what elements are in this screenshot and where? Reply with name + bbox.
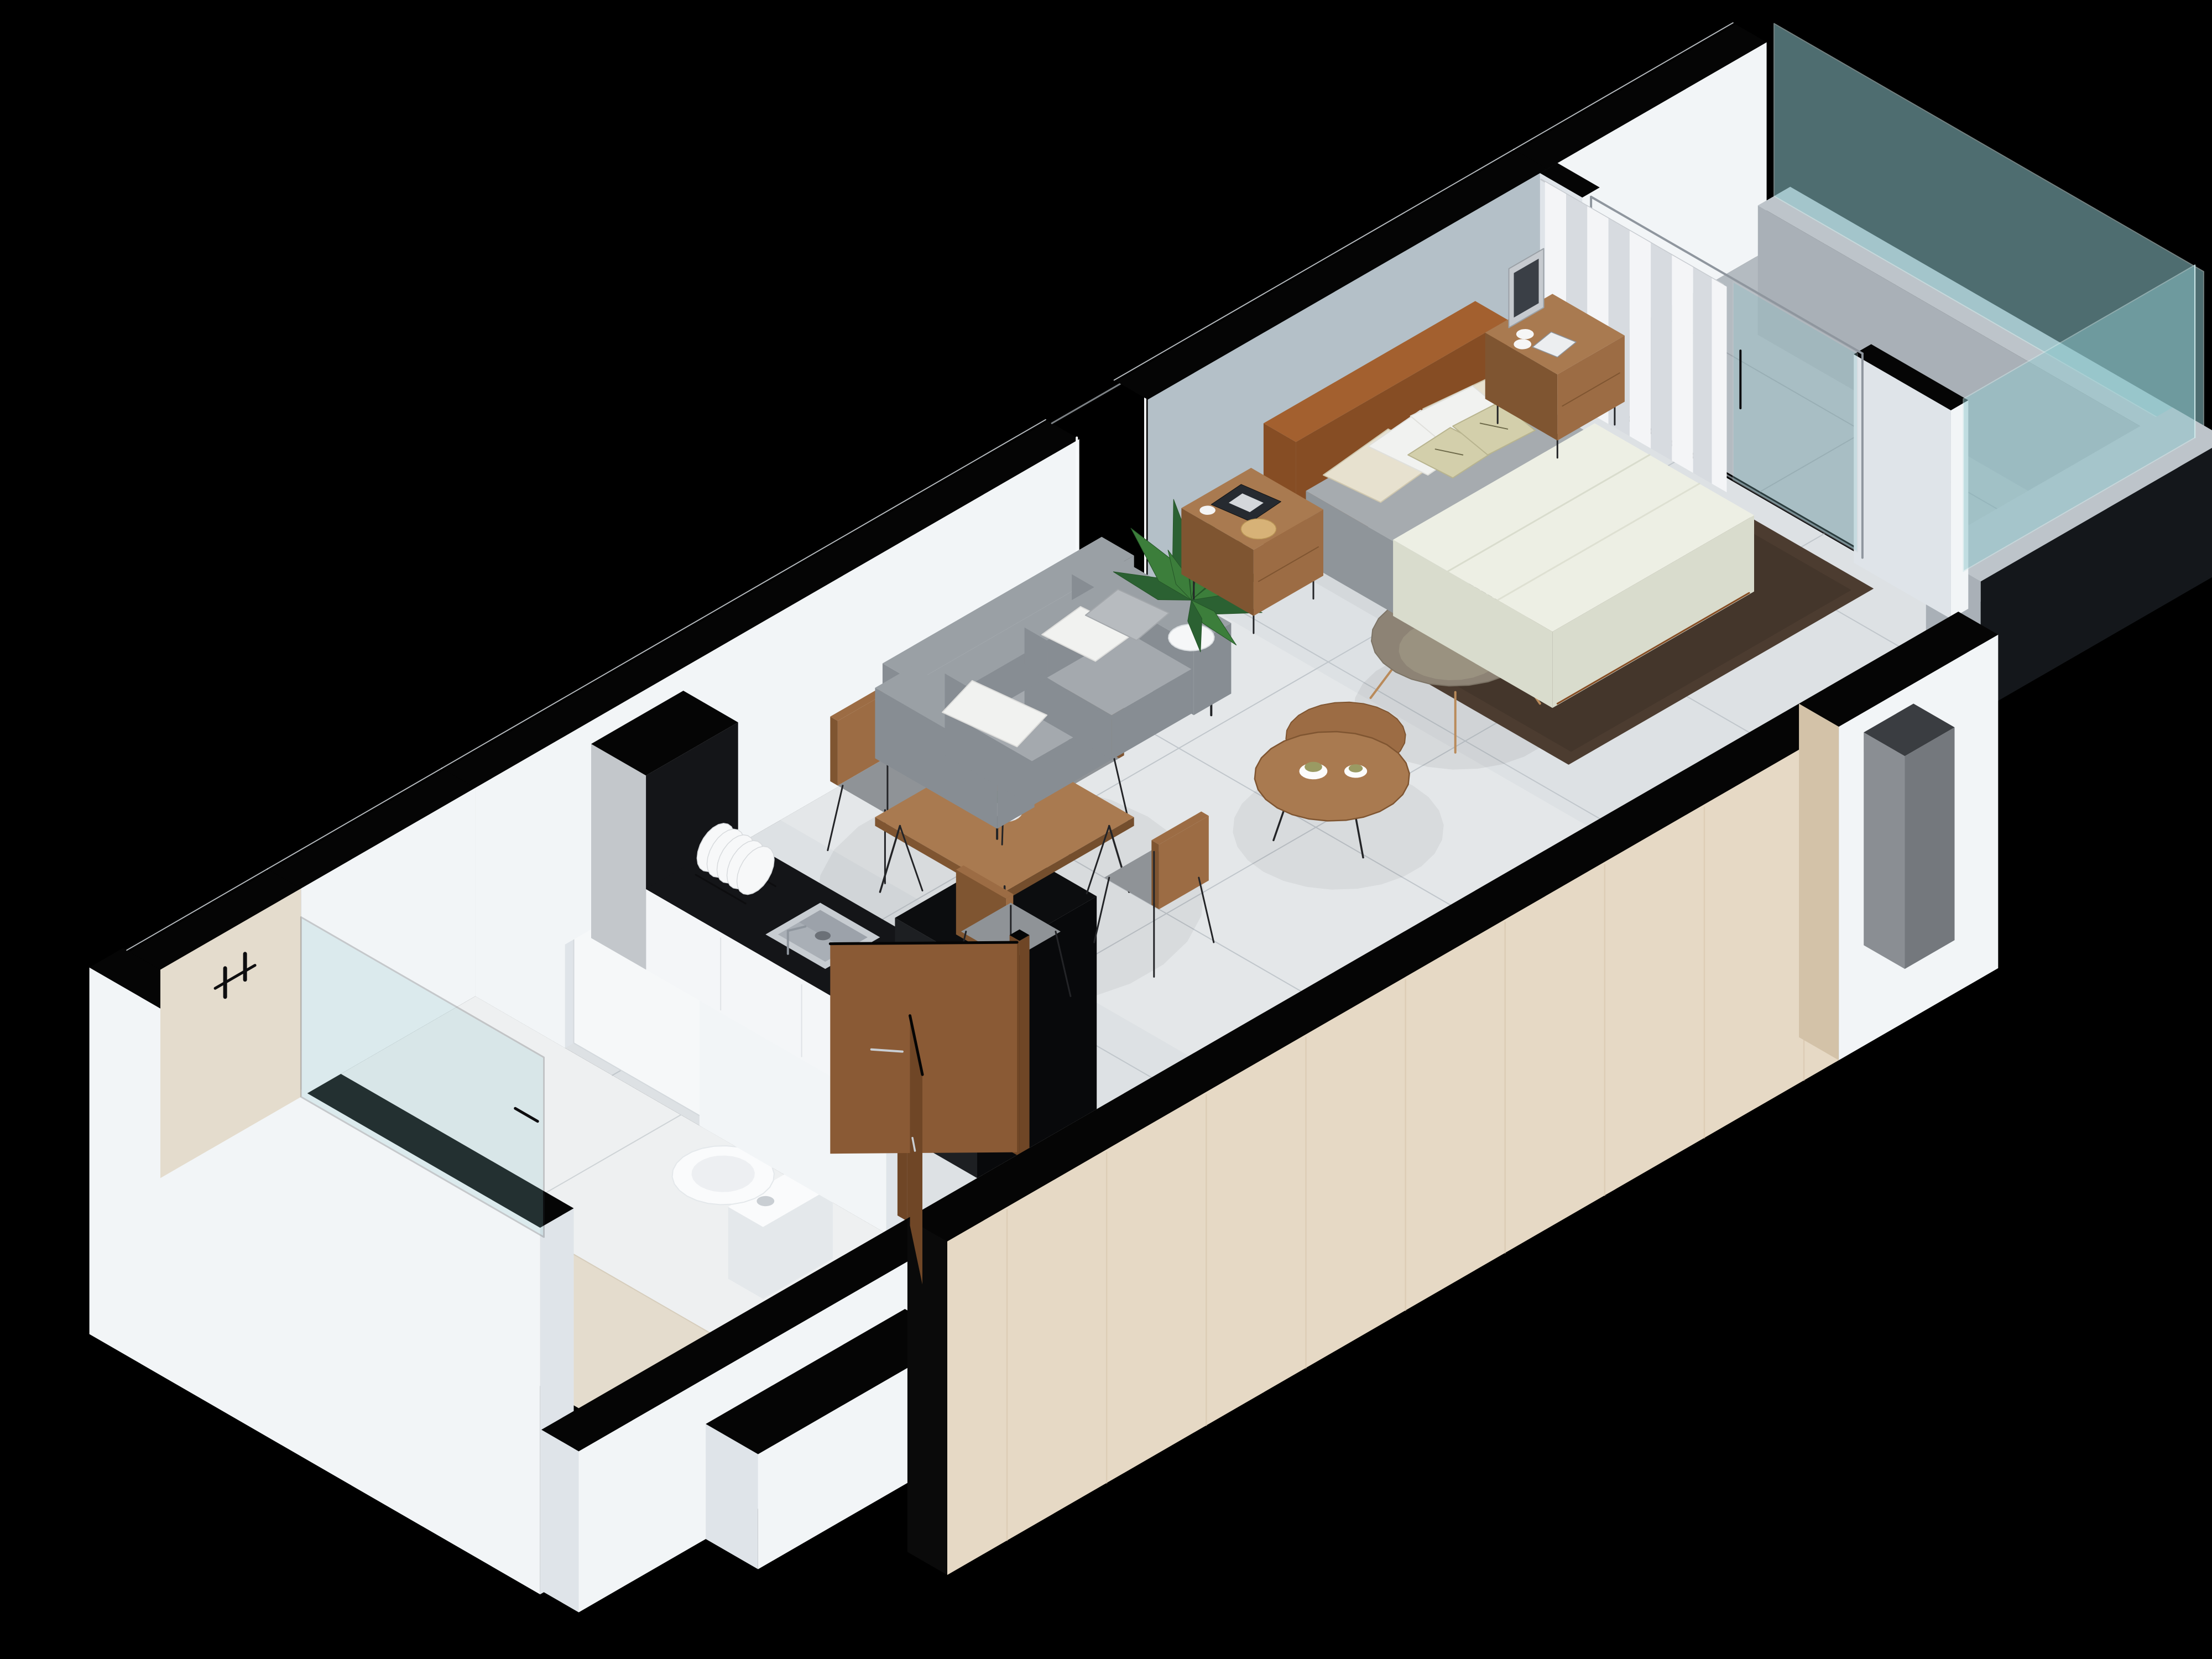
render-canvas <box>0 0 2212 1659</box>
exterior-gray-column <box>1864 703 1954 969</box>
entry-door-open-leaf <box>830 942 1017 1154</box>
apartment-3d-floor-plan <box>0 0 2212 1659</box>
